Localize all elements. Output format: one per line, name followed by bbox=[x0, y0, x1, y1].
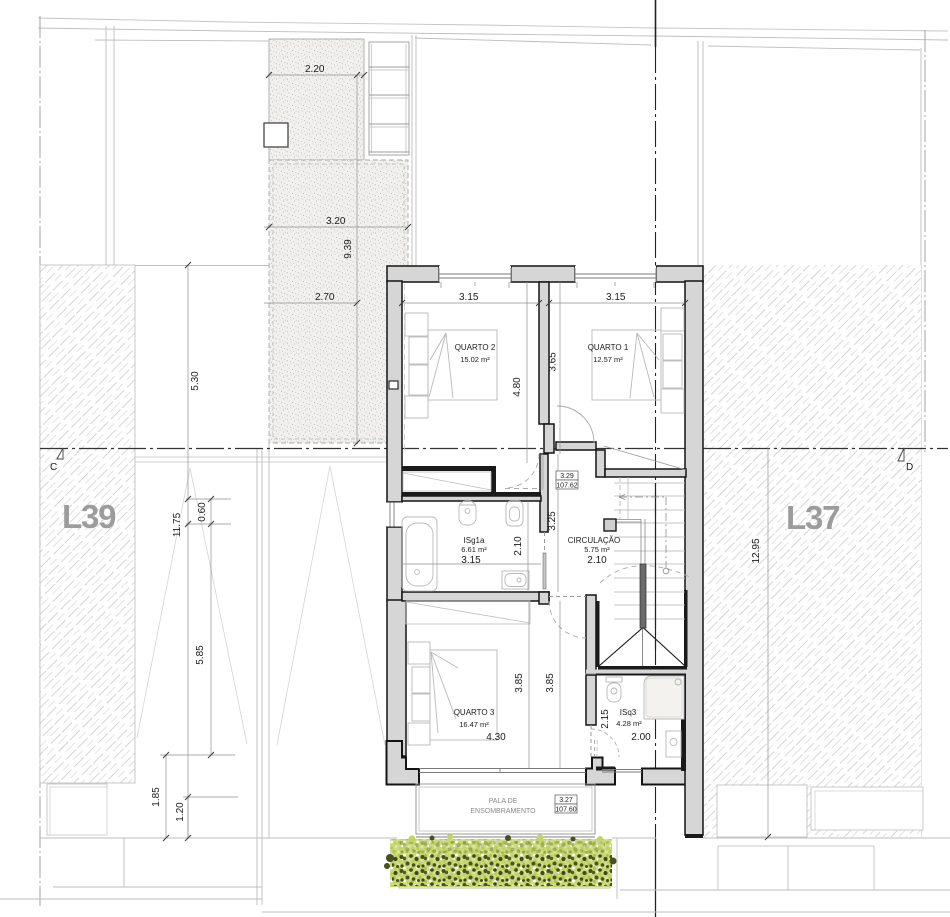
svg-text:6.61 m²: 6.61 m² bbox=[461, 545, 487, 554]
svg-text:ISq3: ISq3 bbox=[620, 708, 637, 717]
svg-text:ISg1a: ISg1a bbox=[464, 536, 485, 545]
svg-text:3.20: 3.20 bbox=[326, 216, 346, 227]
svg-text:1.85: 1.85 bbox=[151, 787, 162, 807]
svg-text:QUARTO 3: QUARTO 3 bbox=[454, 708, 495, 717]
svg-text:3.65: 3.65 bbox=[548, 352, 559, 372]
svg-text:4.28 m²: 4.28 m² bbox=[616, 719, 642, 728]
svg-text:2.10: 2.10 bbox=[587, 555, 607, 566]
svg-text:15.02 m²: 15.02 m² bbox=[460, 355, 490, 364]
svg-text:2.20: 2.20 bbox=[305, 64, 325, 75]
svg-text:L37: L37 bbox=[786, 499, 839, 536]
svg-text:QUARTO 2: QUARTO 2 bbox=[455, 343, 496, 352]
svg-text:3.29: 3.29 bbox=[560, 473, 574, 480]
svg-text:3.25: 3.25 bbox=[547, 511, 558, 531]
svg-text:0.60: 0.60 bbox=[197, 502, 208, 522]
svg-text:5.75 m²: 5.75 m² bbox=[584, 545, 610, 554]
svg-text:16.47 m²: 16.47 m² bbox=[459, 720, 489, 729]
svg-text:CIRCULAÇÃO: CIRCULAÇÃO bbox=[568, 536, 620, 545]
svg-text:4.30: 4.30 bbox=[486, 732, 506, 743]
svg-text:11.75: 11.75 bbox=[172, 512, 183, 537]
svg-text:2.15: 2.15 bbox=[600, 709, 611, 729]
svg-text:9.39: 9.39 bbox=[343, 239, 354, 259]
svg-text:4.80: 4.80 bbox=[512, 377, 523, 397]
svg-text:3.15: 3.15 bbox=[606, 292, 626, 303]
svg-text:107.62: 107.62 bbox=[556, 482, 578, 489]
svg-text:12.57 m²: 12.57 m² bbox=[593, 355, 623, 364]
svg-text:2.00: 2.00 bbox=[631, 732, 651, 743]
svg-text:L39: L39 bbox=[62, 498, 116, 535]
svg-text:3.85: 3.85 bbox=[514, 673, 525, 693]
svg-text:2.70: 2.70 bbox=[315, 292, 335, 303]
svg-text:PALA DE: PALA DE bbox=[489, 798, 518, 805]
svg-text:1.20: 1.20 bbox=[175, 802, 186, 822]
svg-text:107.60: 107.60 bbox=[555, 806, 577, 813]
svg-text:3.15: 3.15 bbox=[461, 555, 481, 566]
svg-text:3.85: 3.85 bbox=[545, 673, 556, 693]
svg-text:QUARTO 1: QUARTO 1 bbox=[588, 343, 629, 352]
svg-text:5.30: 5.30 bbox=[190, 371, 201, 391]
svg-text:2.10: 2.10 bbox=[513, 536, 524, 556]
svg-text:ENSOMBRAMENTO: ENSOMBRAMENTO bbox=[470, 808, 536, 815]
svg-text:3.15: 3.15 bbox=[459, 292, 479, 303]
svg-text:5.85: 5.85 bbox=[195, 645, 206, 665]
svg-text:3.27: 3.27 bbox=[559, 797, 573, 804]
svg-text:12.95: 12.95 bbox=[751, 538, 762, 563]
svg-text:D: D bbox=[906, 462, 913, 473]
svg-text:C: C bbox=[50, 462, 57, 473]
